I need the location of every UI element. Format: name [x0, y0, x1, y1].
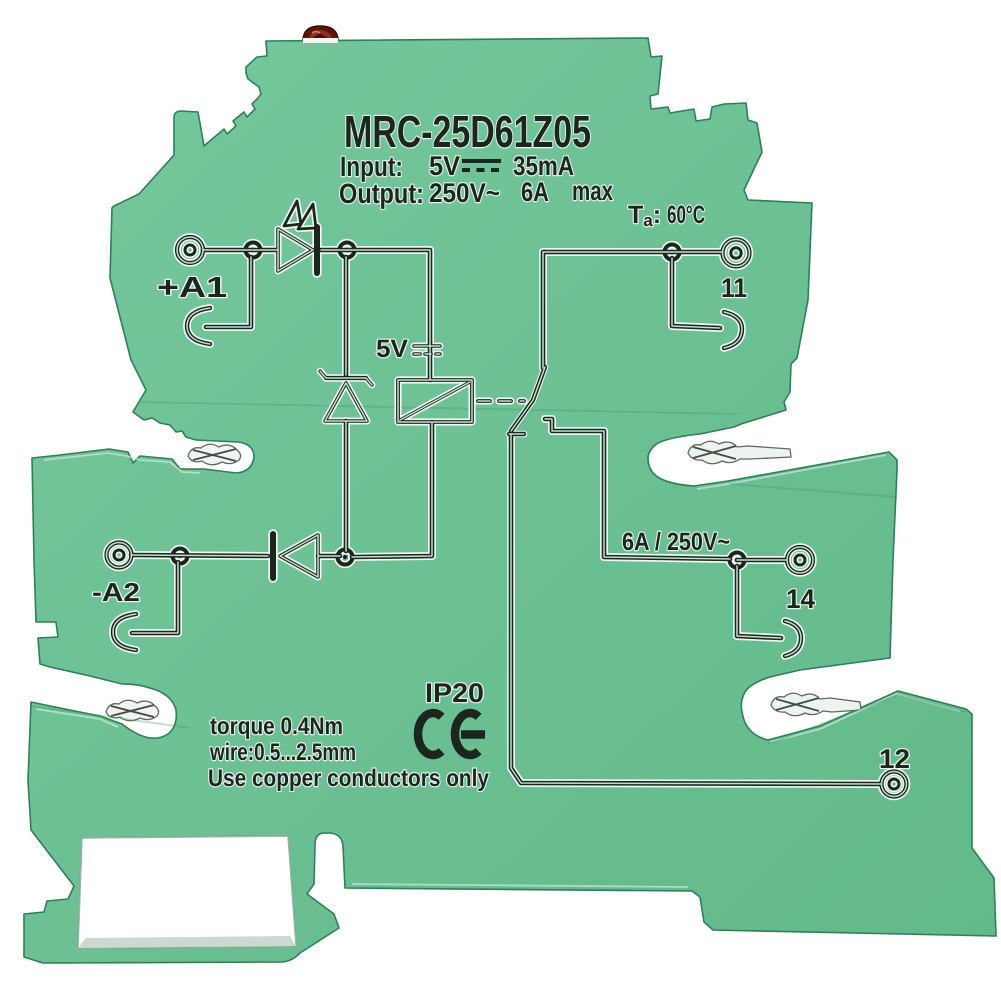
svg-text:+A1: +A1 — [157, 272, 227, 304]
svg-text:Output:: Output: — [339, 178, 424, 209]
svg-text:Use copper conductors only: Use copper conductors only — [208, 765, 490, 792]
svg-text:11: 11 — [721, 273, 747, 303]
svg-text:IP20: IP20 — [425, 678, 484, 708]
svg-text:torque 0.4Nm: torque 0.4Nm — [210, 713, 343, 740]
svg-text:max: max — [572, 176, 613, 206]
svg-text:14: 14 — [786, 584, 815, 614]
svg-text:wire:0.5...2.5mm: wire:0.5...2.5mm — [209, 739, 356, 766]
svg-text:250V~: 250V~ — [429, 178, 500, 208]
svg-text:MRC-25D61Z05: MRC-25D61Z05 — [344, 106, 591, 157]
svg-text:60°C: 60°C — [667, 201, 705, 229]
svg-text:5V: 5V — [376, 335, 408, 363]
svg-text:6A: 6A — [521, 177, 549, 207]
svg-text:5V: 5V — [429, 151, 460, 181]
svg-text:6A / 250V~: 6A / 250V~ — [622, 528, 730, 556]
svg-text:12: 12 — [879, 744, 910, 774]
svg-text:-A2: -A2 — [92, 577, 140, 607]
